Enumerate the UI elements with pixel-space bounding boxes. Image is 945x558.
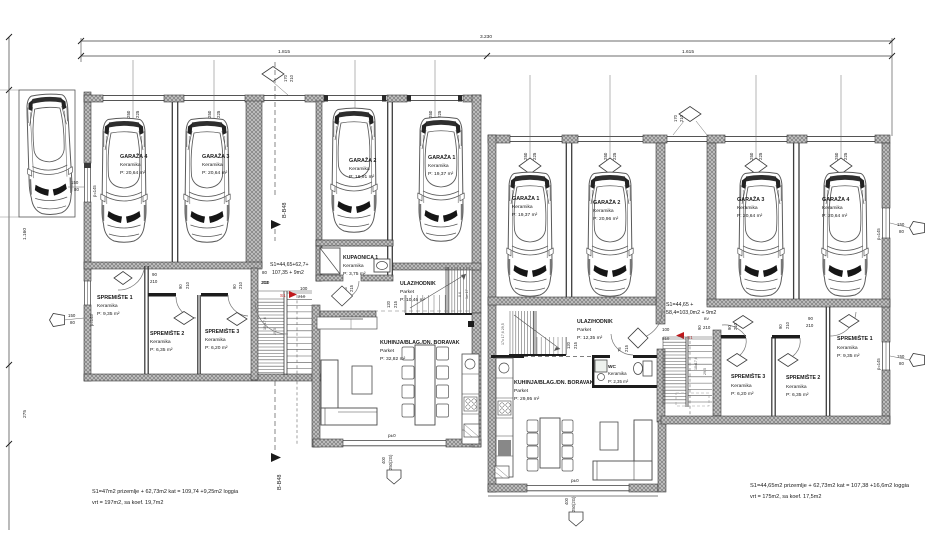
svg-text:P: 12,35 m²: P: 12,35 m²: [577, 335, 603, 341]
svg-text:225: 225: [135, 110, 140, 118]
svg-text:B-B48: B-B48: [282, 202, 288, 218]
svg-text:170: 170: [283, 74, 288, 82]
svg-text:p=145: p=145: [92, 185, 97, 197]
svg-text:Keramika: Keramika: [150, 339, 171, 345]
svg-text:SPREMIŠTE 1: SPREMIŠTE 1: [97, 293, 133, 301]
svg-text:SPREMIŠTE 3: SPREMIŠTE 3: [205, 327, 239, 335]
svg-text:210: 210: [785, 321, 790, 329]
svg-text:Parket: Parket: [380, 348, 395, 354]
svg-text:225: 225: [216, 110, 221, 118]
svg-text:SPREMIŠTE 2: SPREMIŠTE 2: [150, 329, 184, 337]
svg-text:Keramika: Keramika: [97, 303, 118, 309]
svg-text:p=145: p=145: [876, 358, 881, 370]
svg-text:P: 20,96 m²: P: 20,96 m²: [593, 216, 619, 222]
svg-text:100: 100: [662, 327, 670, 332]
svg-text:p±0: p±0: [388, 433, 396, 438]
svg-text:vrt = 175m2, sa koef. 17,5m2: vrt = 175m2, sa koef. 17,5m2: [750, 494, 821, 500]
svg-text:215: 215: [573, 341, 578, 349]
svg-text:210: 210: [703, 325, 711, 330]
svg-text:BV: BV: [704, 317, 710, 321]
svg-text:18x17,6: 18x17,6: [694, 357, 698, 370]
svg-text:8 6: 8 6: [458, 292, 462, 297]
svg-text:GARAŽA 3: GARAŽA 3: [737, 195, 764, 203]
svg-text:GARAŽA 4: GARAŽA 4: [120, 152, 147, 160]
svg-text:250: 250: [428, 110, 433, 118]
svg-text:210: 210: [289, 74, 294, 82]
svg-text:S1=44,65m2 prizemlje + 62,73m2: S1=44,65m2 prizemlje + 62,73m2 kat = 107…: [750, 483, 910, 489]
svg-text:SPREMIŠTE 3: SPREMIŠTE 3: [731, 372, 765, 380]
svg-text:90: 90: [152, 272, 157, 277]
svg-text:17x 17,6 29,5: 17x 17,6 29,5: [501, 323, 505, 345]
svg-text:120: 120: [566, 341, 571, 349]
svg-text:1.615: 1.615: [682, 49, 694, 55]
svg-text:80: 80: [899, 361, 904, 366]
svg-text:400: 400: [564, 497, 569, 505]
svg-text:210: 210: [806, 323, 814, 328]
svg-text:KUHINJA/BLAG./DN. BORAVAK: KUHINJA/BLAG./DN. BORAVAK: [380, 340, 460, 346]
svg-text:1w 17: 1w 17: [465, 289, 469, 299]
svg-text:P: 16,91 m²: P: 16,91 m²: [349, 174, 375, 180]
svg-text:215: 215: [393, 300, 398, 308]
svg-text:P: 20,64 m²: P: 20,64 m²: [822, 213, 848, 219]
svg-text:Parket: Parket: [577, 327, 592, 333]
svg-text:225: 225: [758, 152, 763, 160]
svg-text:250: 250: [207, 110, 212, 118]
svg-text:P: 3,75 m²: P: 3,75 m²: [343, 271, 366, 277]
svg-text:P: 6,35 m²: P: 6,35 m²: [786, 392, 809, 398]
svg-text:225: 225: [532, 152, 537, 160]
svg-text:80: 80: [899, 229, 904, 234]
svg-text:90: 90: [727, 325, 732, 330]
svg-text:P: 6,20 m²: P: 6,20 m²: [205, 345, 228, 351]
svg-text:vrt = 197m2, sa koef. 19,7m2: vrt = 197m2, sa koef. 19,7m2: [92, 500, 163, 506]
svg-text:P: 9,35 m²: P: 9,35 m²: [97, 311, 120, 317]
svg-text:Keramika: Keramika: [120, 162, 141, 168]
svg-text:P: 9,35 m²: P: 9,35 m²: [837, 353, 860, 359]
svg-text:p=145: p=145: [876, 228, 881, 240]
svg-text:ULAZ/HODNIK: ULAZ/HODNIK: [577, 319, 613, 325]
svg-text:90: 90: [697, 325, 702, 330]
svg-text:S1=47m2 prizemlje + 62,73m2 ka: S1=47m2 prizemlje + 62,73m2 kat = 109,74…: [92, 489, 239, 495]
svg-text:Keramika: Keramika: [731, 383, 752, 389]
svg-text:GARAŽA 4: GARAŽA 4: [822, 195, 849, 203]
svg-text:P: 19,37 m²: P: 19,37 m²: [428, 171, 454, 177]
svg-text:Keramika: Keramika: [608, 371, 627, 376]
svg-text:1.160: 1.160: [22, 228, 28, 240]
svg-text:Keramika: Keramika: [593, 208, 614, 214]
svg-text:B-B48: B-B48: [277, 474, 283, 490]
svg-text:250: 250: [603, 152, 608, 160]
svg-text:GARAŽA 3: GARAŽA 3: [202, 152, 229, 160]
svg-text:Keramika: Keramika: [205, 337, 226, 343]
svg-text:S1=44,65 +: S1=44,65 +: [666, 302, 693, 308]
svg-text:250: 250: [834, 152, 839, 160]
svg-text:Keramika: Keramika: [822, 205, 843, 211]
svg-text:210: 210: [679, 114, 684, 122]
svg-text:210: 210: [733, 322, 738, 330]
svg-text:100: 100: [300, 286, 308, 291]
svg-text:Keramika: Keramika: [737, 205, 758, 211]
svg-text:WC: WC: [608, 364, 617, 370]
svg-text:P: 6,20 m²: P: 6,20 m²: [731, 391, 754, 397]
svg-text:Parket: Parket: [514, 388, 529, 394]
svg-text:P: 6,35 m²: P: 6,35 m²: [150, 347, 173, 353]
svg-text:250(2G): 250(2G): [571, 496, 576, 512]
svg-text:400: 400: [381, 456, 386, 464]
svg-text:P: 20,64 m²: P: 20,64 m²: [120, 170, 146, 176]
svg-text:GARAŽA 2: GARAŽA 2: [593, 198, 620, 206]
svg-text:215: 215: [624, 344, 629, 352]
svg-text:120: 120: [386, 300, 391, 308]
svg-text:225: 225: [612, 152, 617, 160]
svg-text:3.230: 3.230: [480, 34, 492, 40]
svg-text:P: 20,64 m²: P: 20,64 m²: [202, 170, 228, 176]
svg-text:80: 80: [74, 187, 79, 192]
svg-text:107,35 + 9m2: 107,35 + 9m2: [272, 270, 304, 276]
svg-text:215: 215: [349, 284, 354, 292]
svg-text:250: 250: [749, 152, 754, 160]
svg-text:250(2G): 250(2G): [388, 454, 393, 470]
svg-text:GARAŽA 1: GARAŽA 1: [512, 194, 539, 202]
svg-text:KUPAONICA 1: KUPAONICA 1: [343, 255, 378, 261]
svg-text:225: 225: [843, 152, 848, 160]
svg-text:90: 90: [232, 284, 237, 289]
svg-text:150: 150: [68, 313, 76, 318]
svg-text:GARAŽA 1: GARAŽA 1: [428, 153, 455, 161]
svg-text:90: 90: [178, 284, 183, 289]
svg-text:p=145: p=145: [89, 314, 94, 326]
svg-text:Keramika: Keramika: [837, 345, 858, 351]
svg-text:1.815: 1.815: [278, 49, 290, 55]
svg-text:170: 170: [673, 114, 678, 122]
svg-text:58,4=103,0m2 + 9m2: 58,4=103,0m2 + 9m2: [666, 310, 716, 316]
svg-text:250: 250: [523, 152, 528, 160]
svg-text:80: 80: [262, 270, 267, 275]
svg-text:Keramika: Keramika: [428, 163, 449, 169]
svg-text:S1=44,65+62,7+: S1=44,65+62,7+: [270, 262, 309, 268]
svg-text:P: 2,35 m²: P: 2,35 m²: [608, 379, 629, 384]
svg-text:GARAŽA 2: GARAŽA 2: [349, 156, 376, 164]
svg-text:P: 19,37 m²: P: 19,37 m²: [512, 212, 538, 218]
svg-text:250: 250: [126, 110, 131, 118]
svg-text:Keramika: Keramika: [202, 162, 223, 168]
svg-text:Keramika: Keramika: [343, 263, 364, 269]
svg-text:90: 90: [808, 316, 813, 321]
svg-text:80: 80: [70, 320, 75, 325]
svg-text:210: 210: [185, 281, 190, 289]
svg-text:P: 32,82 m²: P: 32,82 m²: [380, 356, 406, 362]
svg-text:210: 210: [150, 279, 158, 284]
svg-text:275: 275: [22, 410, 28, 418]
svg-text:SPREMIŠTE 1: SPREMIŠTE 1: [837, 334, 873, 342]
svg-text:75: 75: [617, 347, 622, 352]
svg-text:210: 210: [262, 280, 270, 285]
svg-text:ULAZ/HODNIK: ULAZ/HODNIK: [400, 281, 436, 287]
svg-text:Keramika: Keramika: [786, 384, 807, 390]
svg-text:P: 20,64 m²: P: 20,64 m²: [737, 213, 763, 219]
svg-text:p±0: p±0: [571, 478, 579, 483]
svg-text:210: 210: [298, 294, 306, 299]
svg-text:210: 210: [238, 281, 243, 289]
svg-text:29,5: 29,5: [703, 368, 707, 375]
svg-text:KUHINJA/BLAG./DN. BORAVAK: KUHINJA/BLAG./DN. BORAVAK: [514, 380, 594, 386]
svg-text:Keramika: Keramika: [512, 204, 533, 210]
svg-text:90: 90: [778, 324, 783, 329]
svg-text:150: 150: [71, 180, 79, 185]
svg-text:Parket: Parket: [400, 289, 415, 295]
svg-text:P: 10,46 m²: P: 10,46 m²: [400, 297, 426, 303]
svg-text:SPREMIŠTE 2: SPREMIŠTE 2: [786, 373, 820, 381]
svg-text:S1: S1: [280, 293, 286, 298]
svg-text:P: 29,95 m²: P: 29,95 m²: [514, 396, 540, 402]
svg-text:Keramika: Keramika: [349, 166, 370, 172]
